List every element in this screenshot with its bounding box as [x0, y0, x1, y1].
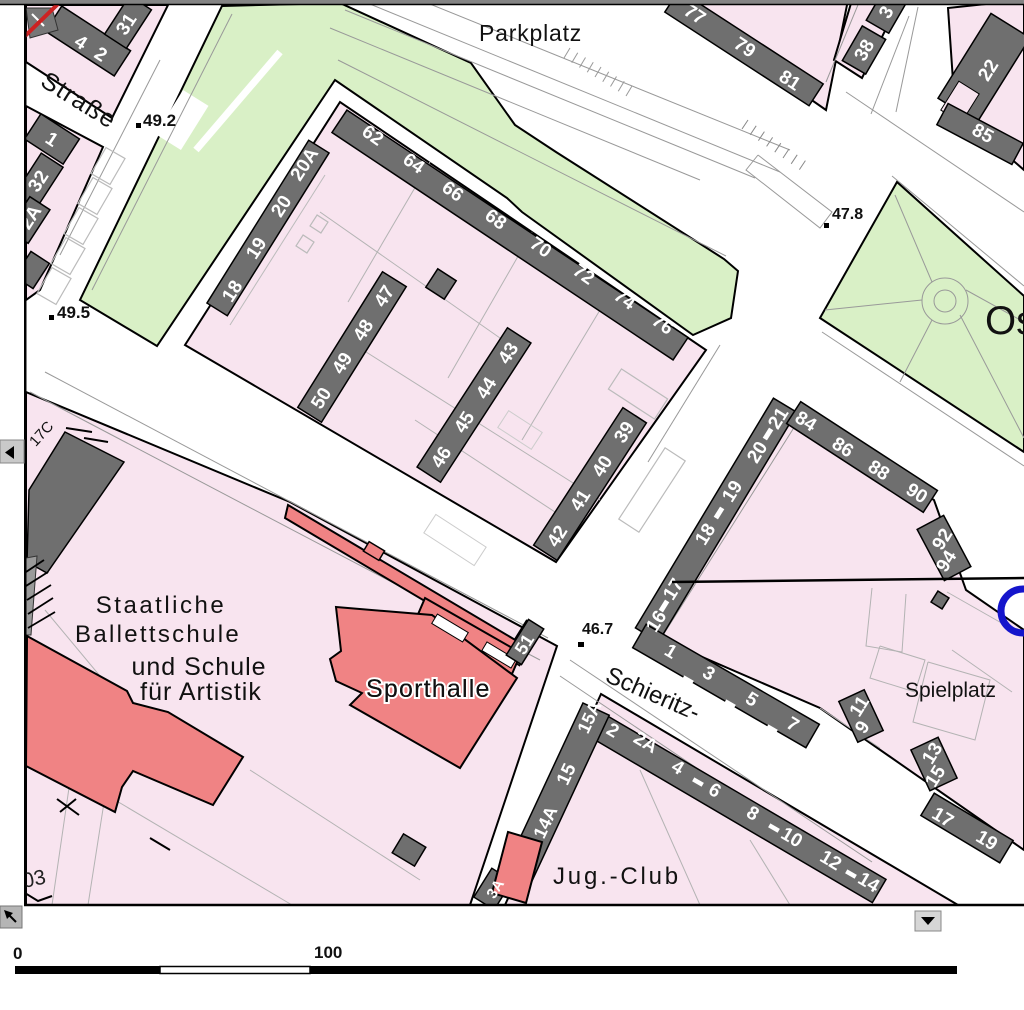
svg-text:100: 100	[314, 943, 342, 962]
svg-text:Ost: Ost	[985, 299, 1024, 343]
svg-text:für Artistik: für Artistik	[140, 678, 262, 706]
svg-text:46.7: 46.7	[582, 621, 613, 638]
svg-text:Parkplatz: Parkplatz	[479, 20, 582, 46]
svg-text:Sporthalle: Sporthalle	[366, 675, 491, 703]
svg-text:49.2: 49.2	[143, 111, 176, 130]
svg-text:Spielplatz: Spielplatz	[905, 679, 996, 702]
svg-text:49.5: 49.5	[57, 303, 90, 322]
svg-text:Staatliche: Staatliche	[96, 592, 226, 619]
svg-text:Jug.-Club: Jug.-Club	[553, 863, 681, 890]
svg-text:47.8: 47.8	[832, 206, 863, 223]
svg-text:0: 0	[13, 944, 22, 963]
svg-text:und Schule: und Schule	[131, 653, 266, 681]
svg-text:Ballettschule: Ballettschule	[75, 621, 241, 648]
